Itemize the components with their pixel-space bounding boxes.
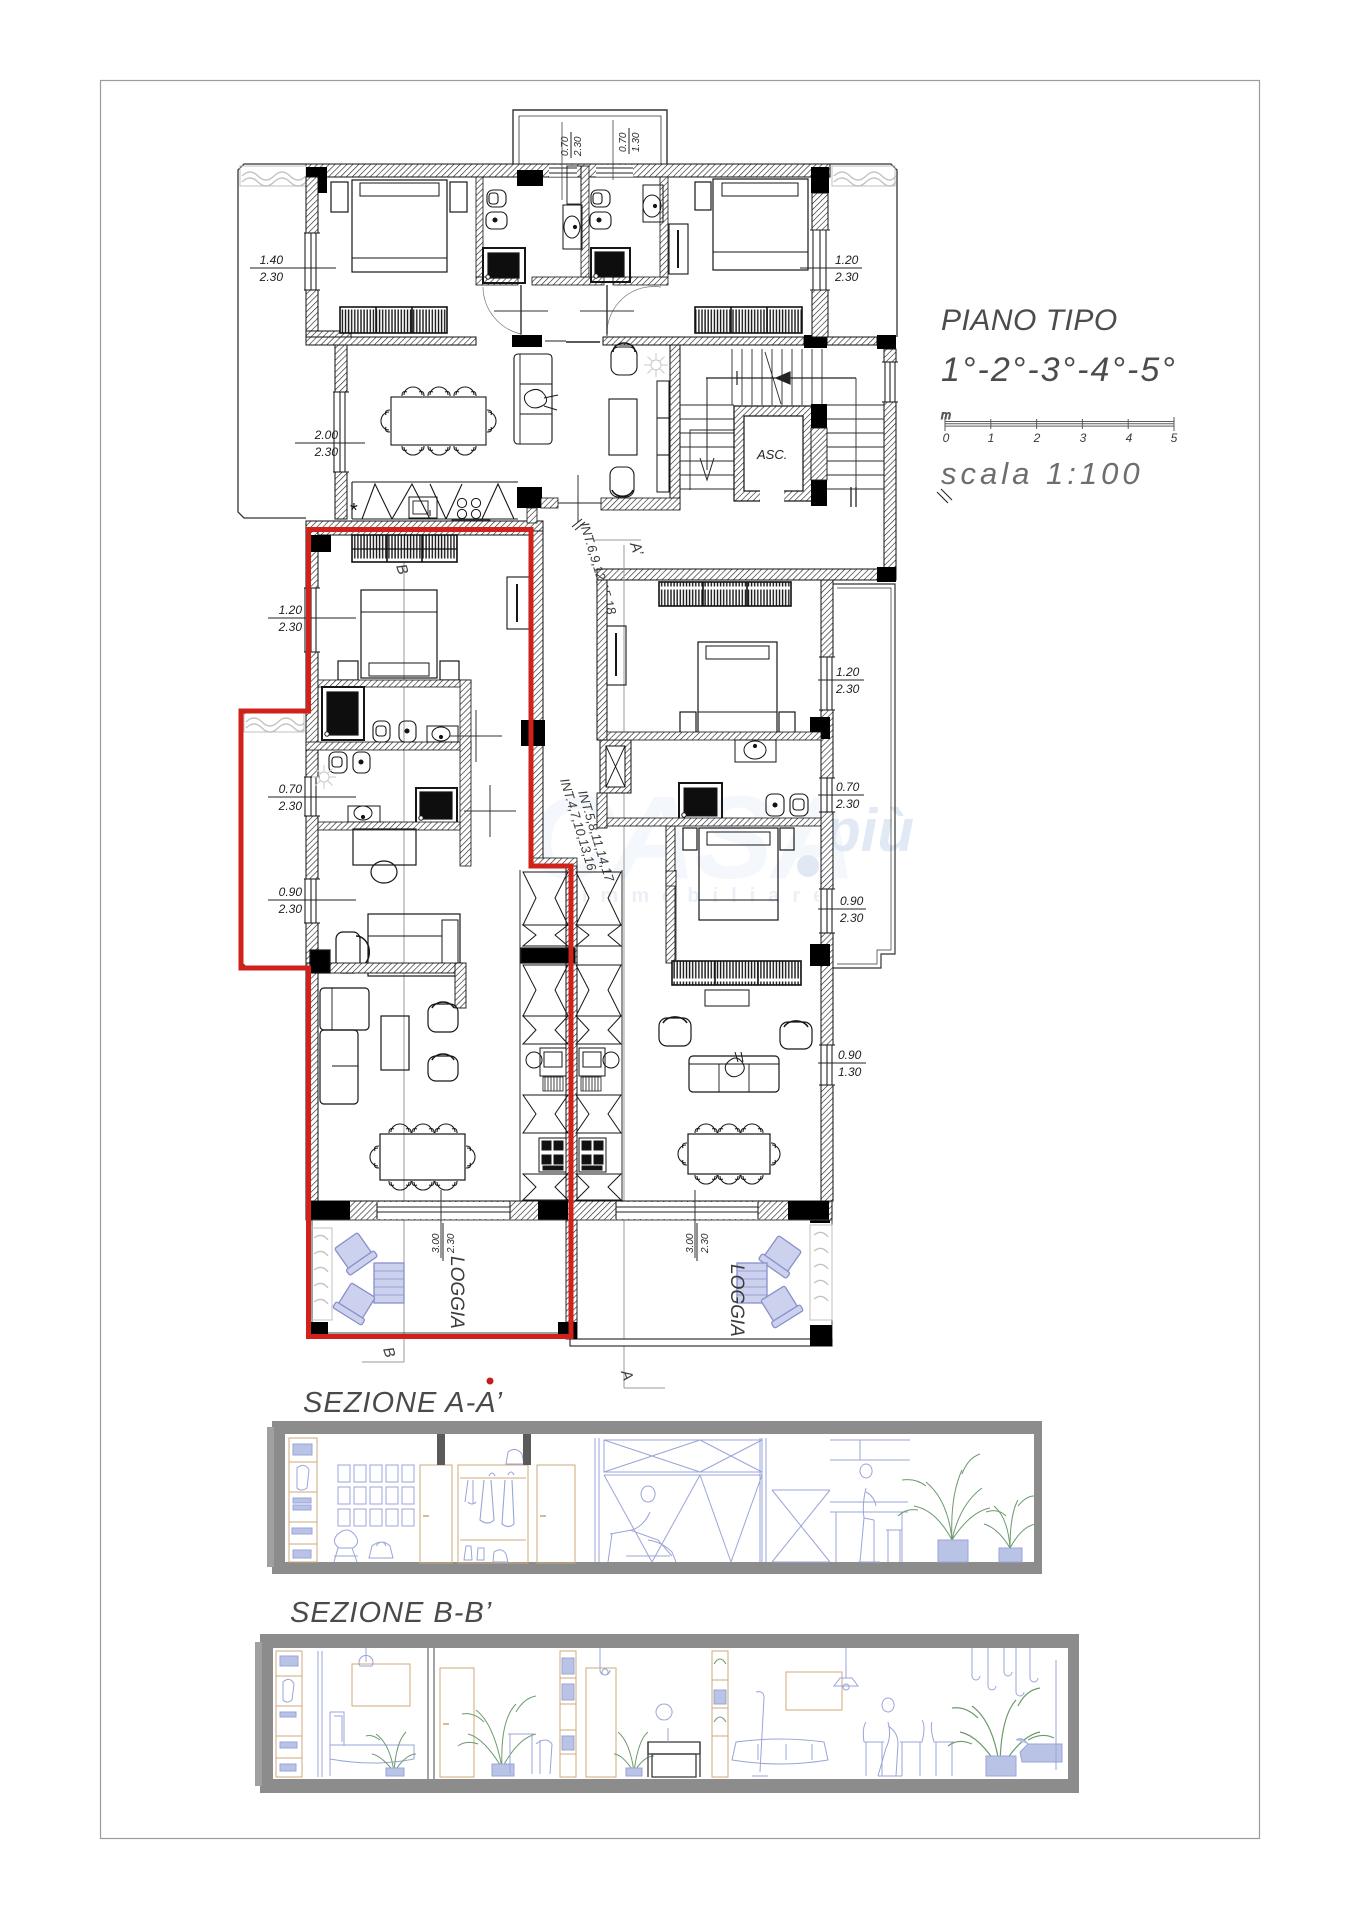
svg-text:1.30: 1.30 (838, 1065, 862, 1079)
svg-text:2.30: 2.30 (278, 620, 303, 634)
svg-text:0.70: 0.70 (618, 132, 629, 152)
svg-text:5: 5 (1171, 431, 1178, 445)
svg-text:1.20: 1.20 (835, 253, 859, 267)
svg-text:scala 1:100: scala 1:100 (941, 456, 1144, 491)
svg-text:SEZIONE B-B’: SEZIONE B-B’ (290, 1597, 492, 1629)
svg-text:0.70: 0.70 (279, 782, 303, 796)
svg-text:2.30: 2.30 (834, 270, 859, 284)
svg-text:2.30: 2.30 (700, 1233, 711, 1254)
svg-text:2.30: 2.30 (835, 797, 860, 811)
svg-text:0.90: 0.90 (838, 1048, 862, 1062)
svg-text:2.30: 2.30 (446, 1233, 457, 1254)
svg-text:2.00: 2.00 (314, 428, 339, 442)
svg-text:2.30: 2.30 (278, 799, 303, 813)
svg-text:1°-2°-3°-4°-5°: 1°-2°-3°-4°-5° (941, 351, 1177, 389)
svg-text:ASC.: ASC. (756, 447, 787, 462)
svg-text:1.20: 1.20 (279, 603, 303, 617)
svg-text:immobiliare: immobiliare (582, 885, 837, 907)
svg-text:1.40: 1.40 (260, 253, 284, 267)
svg-text:2: 2 (1033, 431, 1041, 445)
svg-text:LOGGIA: LOGGIA (446, 1256, 467, 1329)
svg-text:0.70: 0.70 (836, 780, 860, 794)
svg-text:3: 3 (1080, 431, 1087, 445)
svg-text:SEZIONE A-A’: SEZIONE A-A’ (303, 1387, 503, 1419)
svg-text:3.00: 3.00 (431, 1233, 442, 1253)
svg-text:2.30: 2.30 (314, 445, 339, 459)
svg-text:4: 4 (1126, 431, 1133, 445)
svg-text:LOGGIA: LOGGIA (726, 1264, 747, 1337)
svg-text:2.30: 2.30 (278, 902, 303, 916)
svg-text:1.30: 1.30 (631, 132, 642, 152)
svg-text:m: m (941, 408, 951, 422)
svg-text:2.30: 2.30 (839, 911, 864, 925)
svg-text:2.30: 2.30 (573, 136, 584, 157)
svg-text:1.20: 1.20 (836, 665, 860, 679)
svg-text:0.90: 0.90 (279, 885, 303, 899)
svg-text:2.30: 2.30 (259, 270, 284, 284)
svg-text:*: * (350, 500, 358, 522)
svg-text:2.30: 2.30 (835, 682, 860, 696)
svg-text:0: 0 (943, 431, 950, 445)
svg-text:1: 1 (988, 431, 995, 445)
svg-text:3.00: 3.00 (685, 1233, 696, 1253)
svg-text:PIANO TIPO: PIANO TIPO (941, 304, 1118, 337)
svg-text:0.90: 0.90 (840, 894, 864, 908)
